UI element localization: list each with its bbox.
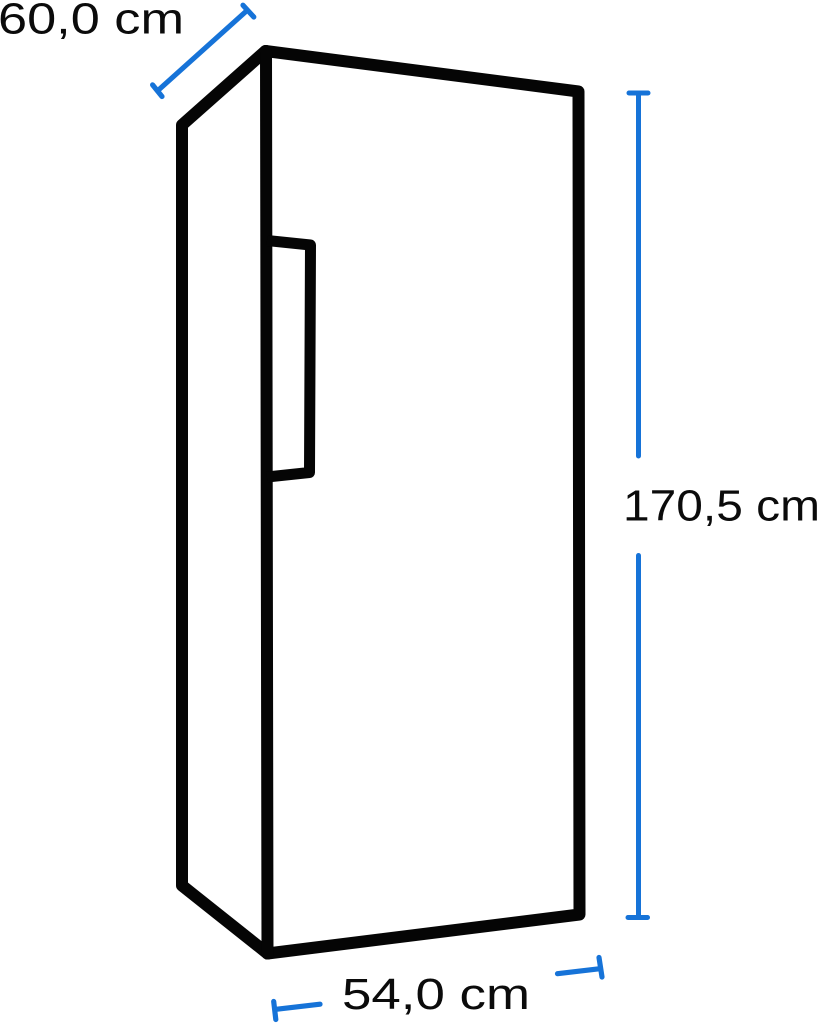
svg-text:60,0 cm: 60,0 cm bbox=[0, 0, 184, 44]
svg-text:170,5 cm: 170,5 cm bbox=[623, 482, 819, 531]
svg-text:54,0 cm: 54,0 cm bbox=[342, 970, 530, 1019]
